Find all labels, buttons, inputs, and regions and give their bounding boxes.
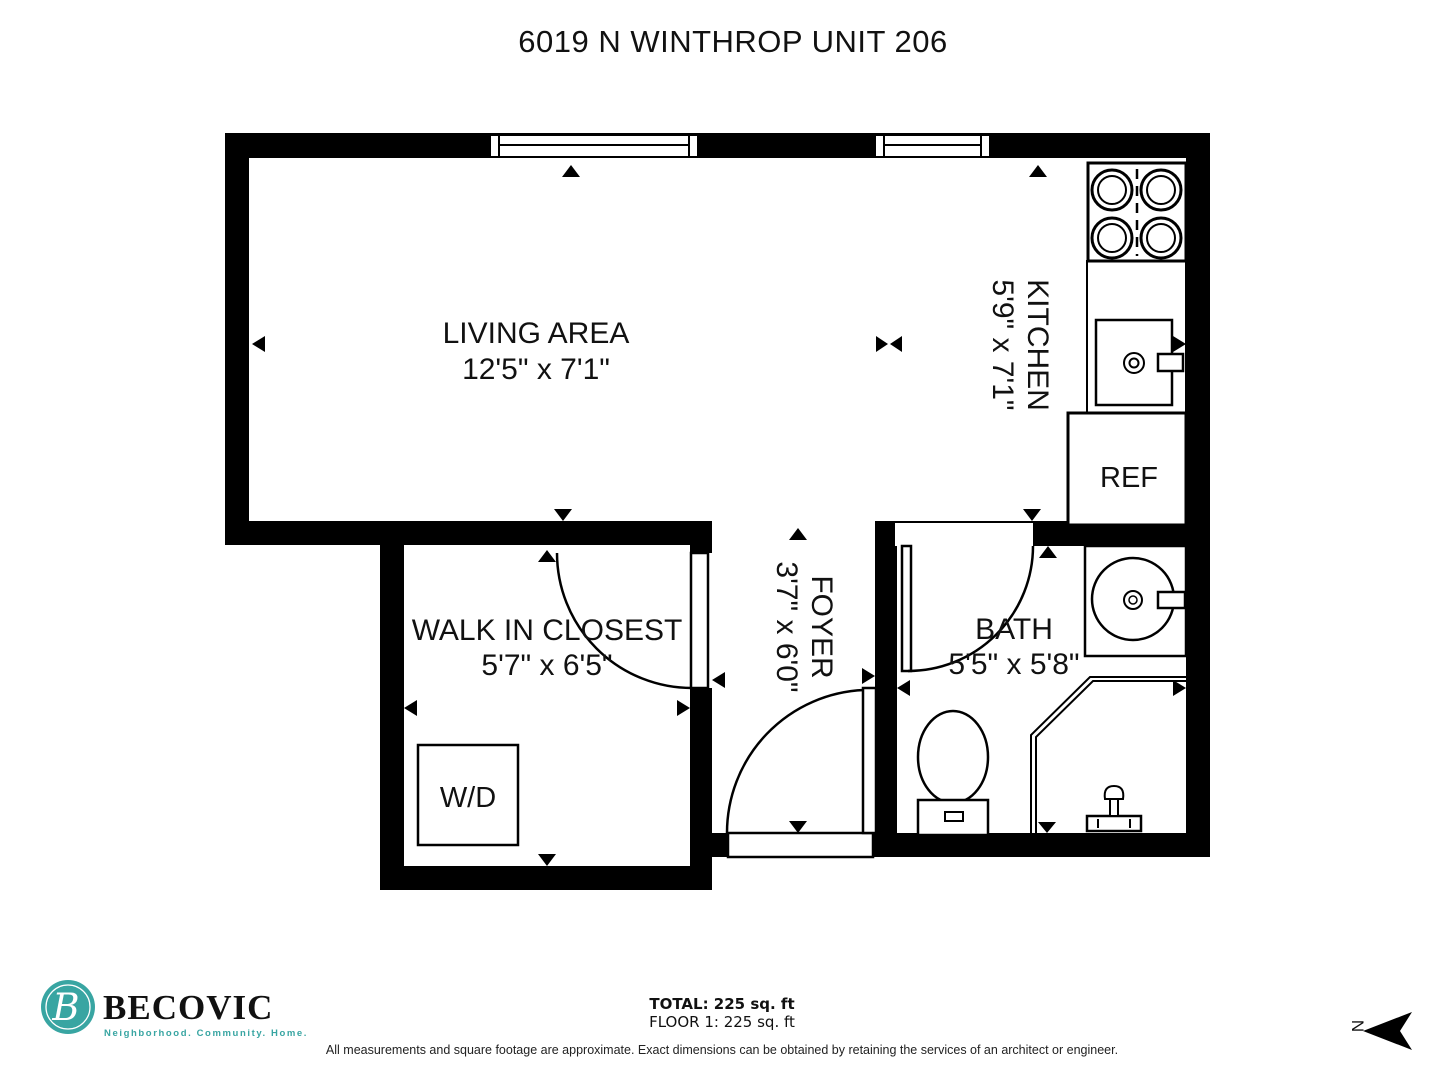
- kitchen-fixtures: REF: [1068, 163, 1186, 525]
- washer-dryer-label: W/D: [440, 782, 496, 814]
- room-dims-bath: 5'5" x 5'8": [948, 648, 1079, 681]
- bathroom-sink-icon: [1085, 546, 1186, 656]
- room-label-closet: WALK IN CLOSEST: [412, 614, 683, 647]
- marker-living-top: [562, 165, 580, 177]
- marker-foyer-left: [712, 672, 725, 688]
- room-label-foyer: FOYER: [805, 575, 838, 678]
- floor-sqft: FLOOR 1: 225 sq. ft: [649, 1013, 795, 1031]
- wall-closet-left: [380, 521, 404, 890]
- wall-living-bottom: [225, 521, 712, 545]
- marker-living-right-a: [876, 336, 888, 352]
- north-arrow-icon: N: [1348, 1012, 1412, 1050]
- marker-bath-top: [1039, 546, 1057, 558]
- bathroom-fixtures: [918, 546, 1186, 835]
- wall-left: [225, 133, 249, 545]
- marker-foyer-right: [862, 668, 875, 684]
- room-labels: LIVING AREA 12'5" x 7'1" KITCHEN 5'9" x …: [412, 279, 1080, 692]
- logo-initial: B: [51, 986, 79, 1029]
- marker-living-left: [252, 336, 265, 352]
- marker-living-right-b: [890, 336, 902, 352]
- marker-bath-bottom: [1038, 822, 1056, 833]
- room-label-kitchen: KITCHEN: [1021, 279, 1054, 411]
- room-dims-closet: 5'7" x 6'5": [481, 649, 612, 682]
- marker-living-bottom: [554, 509, 572, 521]
- marker-closet-top: [538, 550, 556, 562]
- footer: B BECOVIC Neighborhood. Community. Home.…: [41, 980, 1412, 1057]
- floorplan-canvas: 6019 N WINTHROP UNIT 206: [0, 0, 1440, 1080]
- brand-tagline: Neighborhood. Community. Home.: [104, 1028, 308, 1039]
- marker-kitchen-bottom: [1023, 509, 1041, 521]
- wall-closet-bottom: [380, 866, 712, 890]
- room-label-bath: BATH: [975, 613, 1053, 646]
- wall-top: [225, 133, 1210, 158]
- marker-bath-left: [897, 680, 910, 696]
- stove-icon: [1088, 163, 1186, 261]
- marker-closet-right: [677, 700, 690, 716]
- marker-closet-left: [404, 700, 417, 716]
- page-title: 6019 N WINTHROP UNIT 206: [518, 24, 948, 59]
- shower-icon: [1031, 677, 1186, 833]
- kitchen-sink-icon: [1096, 320, 1183, 405]
- disclaimer-text: All measurements and square footage are …: [326, 1043, 1118, 1057]
- refrigerator-label: REF: [1100, 462, 1158, 494]
- room-label-living: LIVING AREA: [443, 317, 630, 350]
- entry-door-icon: [727, 688, 876, 833]
- marker-closet-bottom: [538, 854, 556, 866]
- room-dims-foyer: 3'7" x 6'0": [770, 561, 803, 692]
- marker-foyer-bottom: [789, 821, 807, 833]
- window-icon-living: [490, 135, 698, 157]
- entry-threshold: [728, 833, 873, 857]
- refrigerator-box: REF: [1068, 413, 1186, 525]
- becovic-logo: B BECOVIC Neighborhood. Community. Home.: [41, 980, 308, 1039]
- room-dims-kitchen: 5'9" x 7'1": [986, 279, 1019, 410]
- north-label: N: [1348, 1020, 1367, 1032]
- marker-foyer-top: [789, 528, 807, 540]
- toilet-icon: [918, 711, 988, 835]
- total-sqft: TOTAL: 225 sq. ft: [649, 995, 794, 1013]
- marker-kitchen-top: [1029, 165, 1047, 177]
- marker-bath-right: [1173, 680, 1186, 696]
- washer-dryer-box: W/D: [418, 745, 518, 845]
- wall-foyer-bath: [875, 521, 897, 857]
- bath-door-gap: [895, 523, 1033, 546]
- brand-name: BECOVIC: [103, 988, 273, 1027]
- wall-right: [1186, 133, 1210, 857]
- room-dims-living: 12'5" x 7'1": [462, 353, 610, 386]
- walls: [225, 133, 1210, 890]
- window-icon-kitchen: [875, 135, 990, 157]
- shower-valve-icon: [1087, 786, 1141, 831]
